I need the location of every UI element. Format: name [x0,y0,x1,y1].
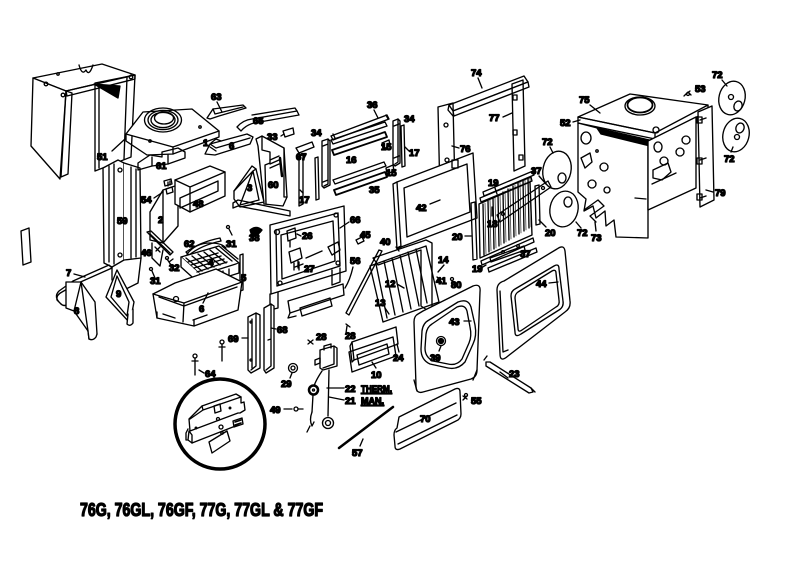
svg-text:72: 72 [542,137,553,148]
svg-text:20: 20 [452,232,463,243]
svg-text:14: 14 [438,255,449,266]
svg-text:69: 69 [228,334,239,345]
svg-text:26: 26 [302,231,313,242]
svg-text:9: 9 [116,289,121,300]
svg-text:39: 39 [430,353,441,364]
svg-text:72: 72 [577,228,588,239]
svg-text:12: 12 [385,279,396,290]
svg-text:65: 65 [253,116,264,127]
svg-text:67: 67 [296,152,307,163]
svg-text:48: 48 [193,199,204,210]
svg-text:15: 15 [381,142,392,153]
svg-text:60: 60 [268,180,279,191]
svg-text:76G, 76GL, 76GF, 77G, 77GL & 7: 76G, 76GL, 76GF, 77G, 77GL & 77GF [80,500,323,520]
svg-text:16: 16 [346,155,357,166]
svg-text:36: 36 [367,100,378,111]
svg-text:24: 24 [393,353,404,364]
svg-text:45: 45 [360,230,371,241]
svg-text:27: 27 [304,264,315,275]
svg-text:15: 15 [386,168,397,179]
svg-text:52: 52 [560,118,571,129]
svg-text:72: 72 [724,154,735,165]
svg-text:3: 3 [247,183,252,194]
svg-text:34: 34 [311,128,322,139]
svg-text:79: 79 [715,188,726,199]
svg-text:22: 22 [345,384,356,395]
svg-text:66: 66 [350,215,361,226]
svg-text:53: 53 [695,84,706,95]
svg-text:40: 40 [380,237,391,248]
svg-text:19: 19 [488,178,499,189]
svg-text:28: 28 [316,332,327,343]
svg-text:19: 19 [472,264,483,275]
svg-text:1: 1 [203,138,209,149]
svg-text:31: 31 [226,239,237,250]
svg-text:43: 43 [449,317,460,328]
svg-text:20: 20 [545,228,556,239]
svg-text:29: 29 [281,379,292,390]
svg-text:23: 23 [509,369,520,380]
svg-text:49: 49 [270,405,281,416]
svg-text:51: 51 [97,152,108,163]
svg-text:46: 46 [141,248,152,259]
svg-text:57: 57 [352,448,363,459]
svg-text:17: 17 [409,148,420,159]
svg-text:32: 32 [169,263,180,274]
svg-text:31: 31 [150,276,161,287]
svg-text:THERM.: THERM. [361,384,392,395]
svg-text:10: 10 [371,370,382,381]
svg-text:74: 74 [471,68,482,79]
svg-text:37: 37 [531,166,542,177]
svg-text:76: 76 [460,144,471,155]
svg-text:2: 2 [158,215,163,226]
svg-text:59: 59 [117,216,128,227]
svg-text:72: 72 [712,70,723,81]
svg-text:35: 35 [369,185,380,196]
svg-text:7: 7 [66,268,71,279]
svg-text:13: 13 [375,298,386,309]
svg-text:18: 18 [487,219,498,230]
svg-text:41: 41 [436,276,447,287]
svg-text:4: 4 [208,258,214,269]
svg-text:6: 6 [199,304,204,315]
svg-text:56: 56 [350,256,361,267]
svg-text:61: 61 [156,161,167,172]
svg-text:80: 80 [451,280,462,291]
svg-text:73: 73 [591,233,602,244]
svg-text:44: 44 [536,279,547,290]
svg-text:8: 8 [74,306,79,317]
svg-text:55: 55 [471,396,482,407]
svg-text:63: 63 [211,92,222,103]
svg-text:38: 38 [249,233,260,244]
svg-text:28: 28 [345,331,356,342]
svg-text:54: 54 [141,195,152,206]
svg-text:75: 75 [579,95,590,106]
svg-text:42: 42 [416,203,427,214]
svg-text:MAN.: MAN. [361,396,384,407]
svg-text:70: 70 [420,414,431,425]
svg-text:77: 77 [489,113,500,124]
svg-text:34: 34 [404,114,415,125]
svg-text:6: 6 [229,141,234,152]
svg-text:21: 21 [345,396,356,407]
svg-text:68: 68 [277,325,288,336]
svg-text:17: 17 [299,195,310,206]
